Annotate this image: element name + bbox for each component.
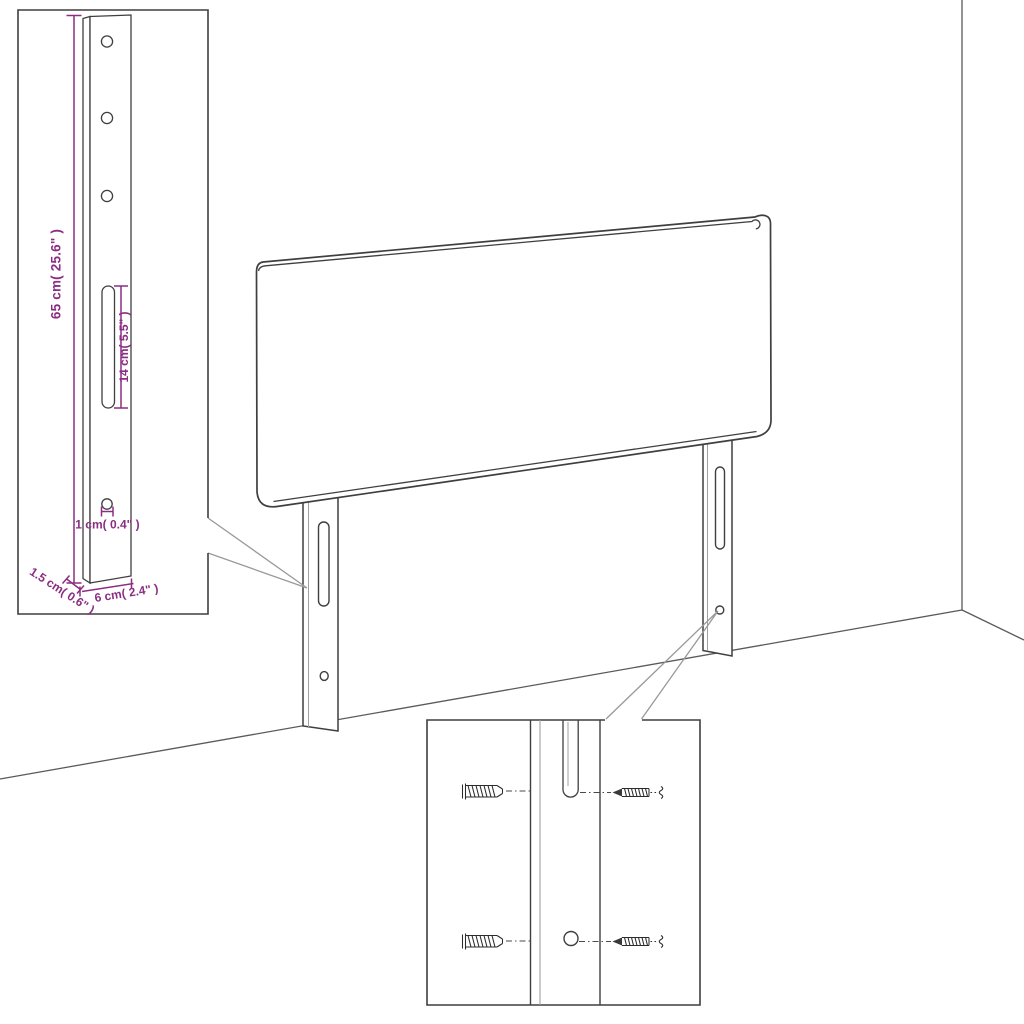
- headboard-dimension-diagram: 65 cm( 25.6" ) 14 cm( 5.5" ) 1 cm( 0.4" …: [0, 0, 1024, 1024]
- right-inset-callout-lines: [606, 611, 718, 719]
- left-leg-hole: [320, 672, 328, 681]
- leg-details: [319, 467, 725, 680]
- leg-hole-1: [101, 36, 112, 47]
- left-inset-callout-lines: [208, 518, 307, 588]
- magnified-leg-slot: [102, 286, 115, 408]
- leg-hole-2: [101, 112, 112, 123]
- magnified-leg-side-face: [83, 17, 90, 584]
- leg-bottom-hole: [102, 499, 112, 509]
- floor-line-right: [962, 610, 1024, 640]
- headboard: [257, 215, 772, 507]
- dimension-inset: 65 cm( 25.6" ) 14 cm( 5.5" ) 1 cm( 0.4" …: [18, 10, 208, 617]
- slot-dimension-label: 14 cm( 5.5" ): [117, 311, 131, 382]
- height-dimension-label: 65 cm( 25.6" ): [49, 229, 64, 319]
- hardware-inset: [427, 720, 700, 1005]
- inset-callout-lines: [208, 518, 718, 719]
- left-leg-slot: [319, 522, 330, 606]
- leg-hole-3: [101, 190, 112, 201]
- right-leg-slot: [716, 467, 725, 549]
- magnified-leg: [83, 15, 131, 583]
- diagram-canvas: 65 cm( 25.6" ) 14 cm( 5.5" ) 1 cm( 0.4" …: [0, 0, 1024, 1024]
- hole-diameter-label: 1 cm( 0.4" ): [75, 518, 139, 532]
- magnified-screw-hole: [564, 932, 578, 946]
